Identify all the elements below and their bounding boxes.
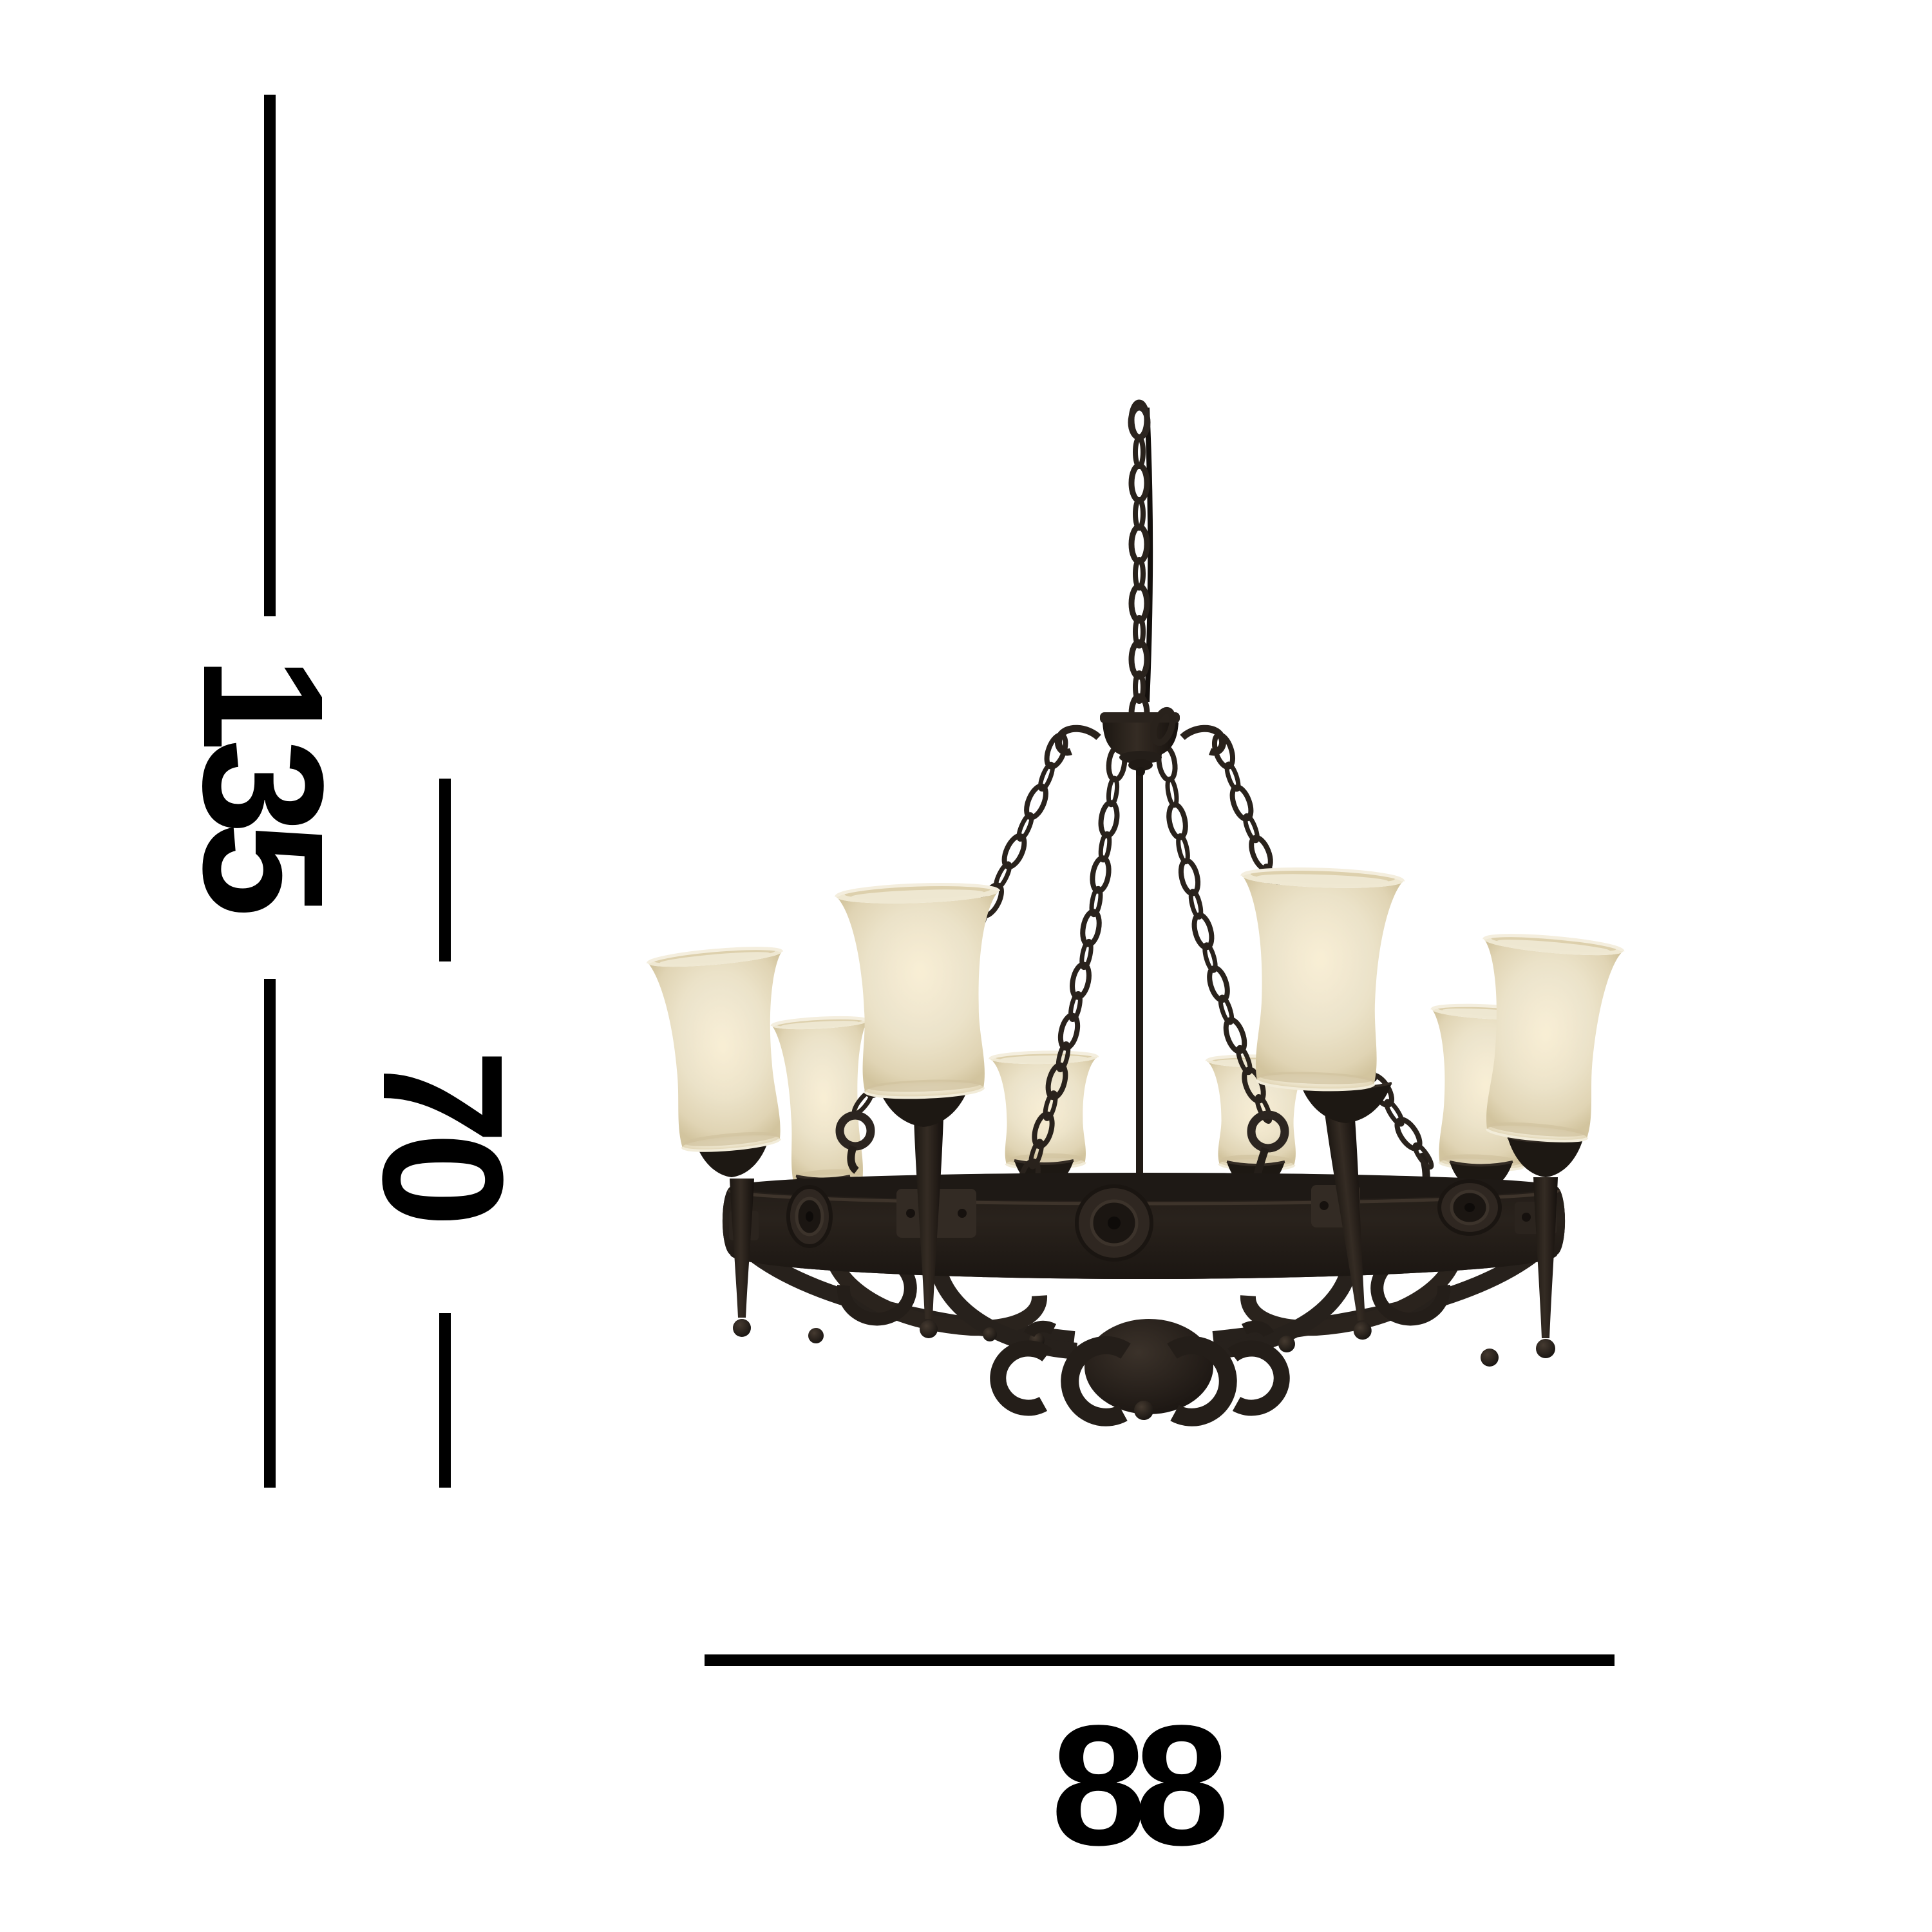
svg-text:135: 135 xyxy=(167,656,359,913)
svg-text:70: 70 xyxy=(347,1049,538,1220)
svg-text:88: 88 xyxy=(1051,1690,1225,1881)
